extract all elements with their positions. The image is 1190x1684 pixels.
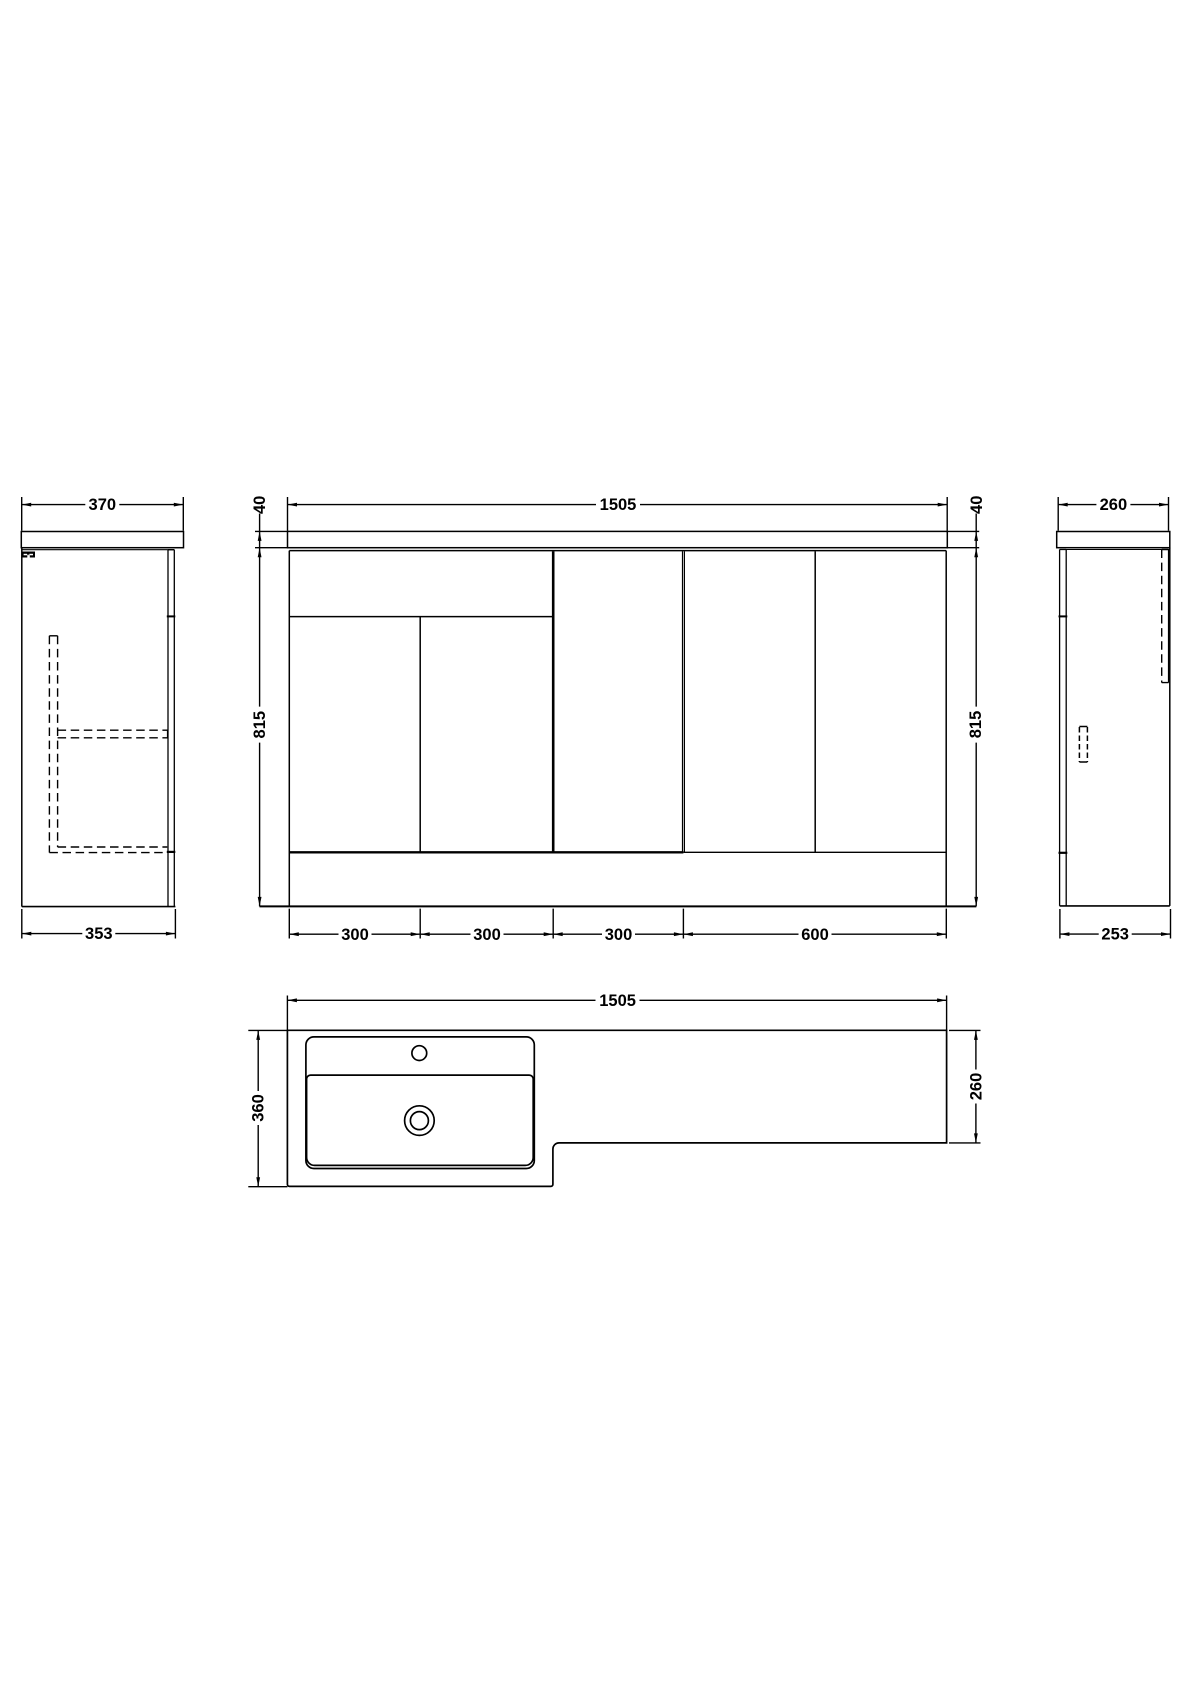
- svg-text:260: 260: [967, 1073, 985, 1101]
- svg-text:253: 253: [1101, 926, 1129, 944]
- svg-text:353: 353: [85, 925, 113, 943]
- svg-text:600: 600: [801, 926, 829, 944]
- svg-text:300: 300: [605, 926, 633, 944]
- svg-text:815: 815: [251, 711, 269, 739]
- svg-text:300: 300: [473, 926, 501, 944]
- svg-text:370: 370: [89, 496, 117, 514]
- svg-text:260: 260: [1100, 496, 1128, 514]
- svg-text:1505: 1505: [600, 496, 637, 514]
- svg-text:1505: 1505: [599, 992, 636, 1010]
- svg-text:40: 40: [251, 496, 269, 514]
- svg-text:40: 40: [968, 496, 986, 514]
- svg-text:815: 815: [967, 711, 985, 739]
- svg-text:360: 360: [250, 1094, 268, 1122]
- svg-text:300: 300: [341, 926, 369, 944]
